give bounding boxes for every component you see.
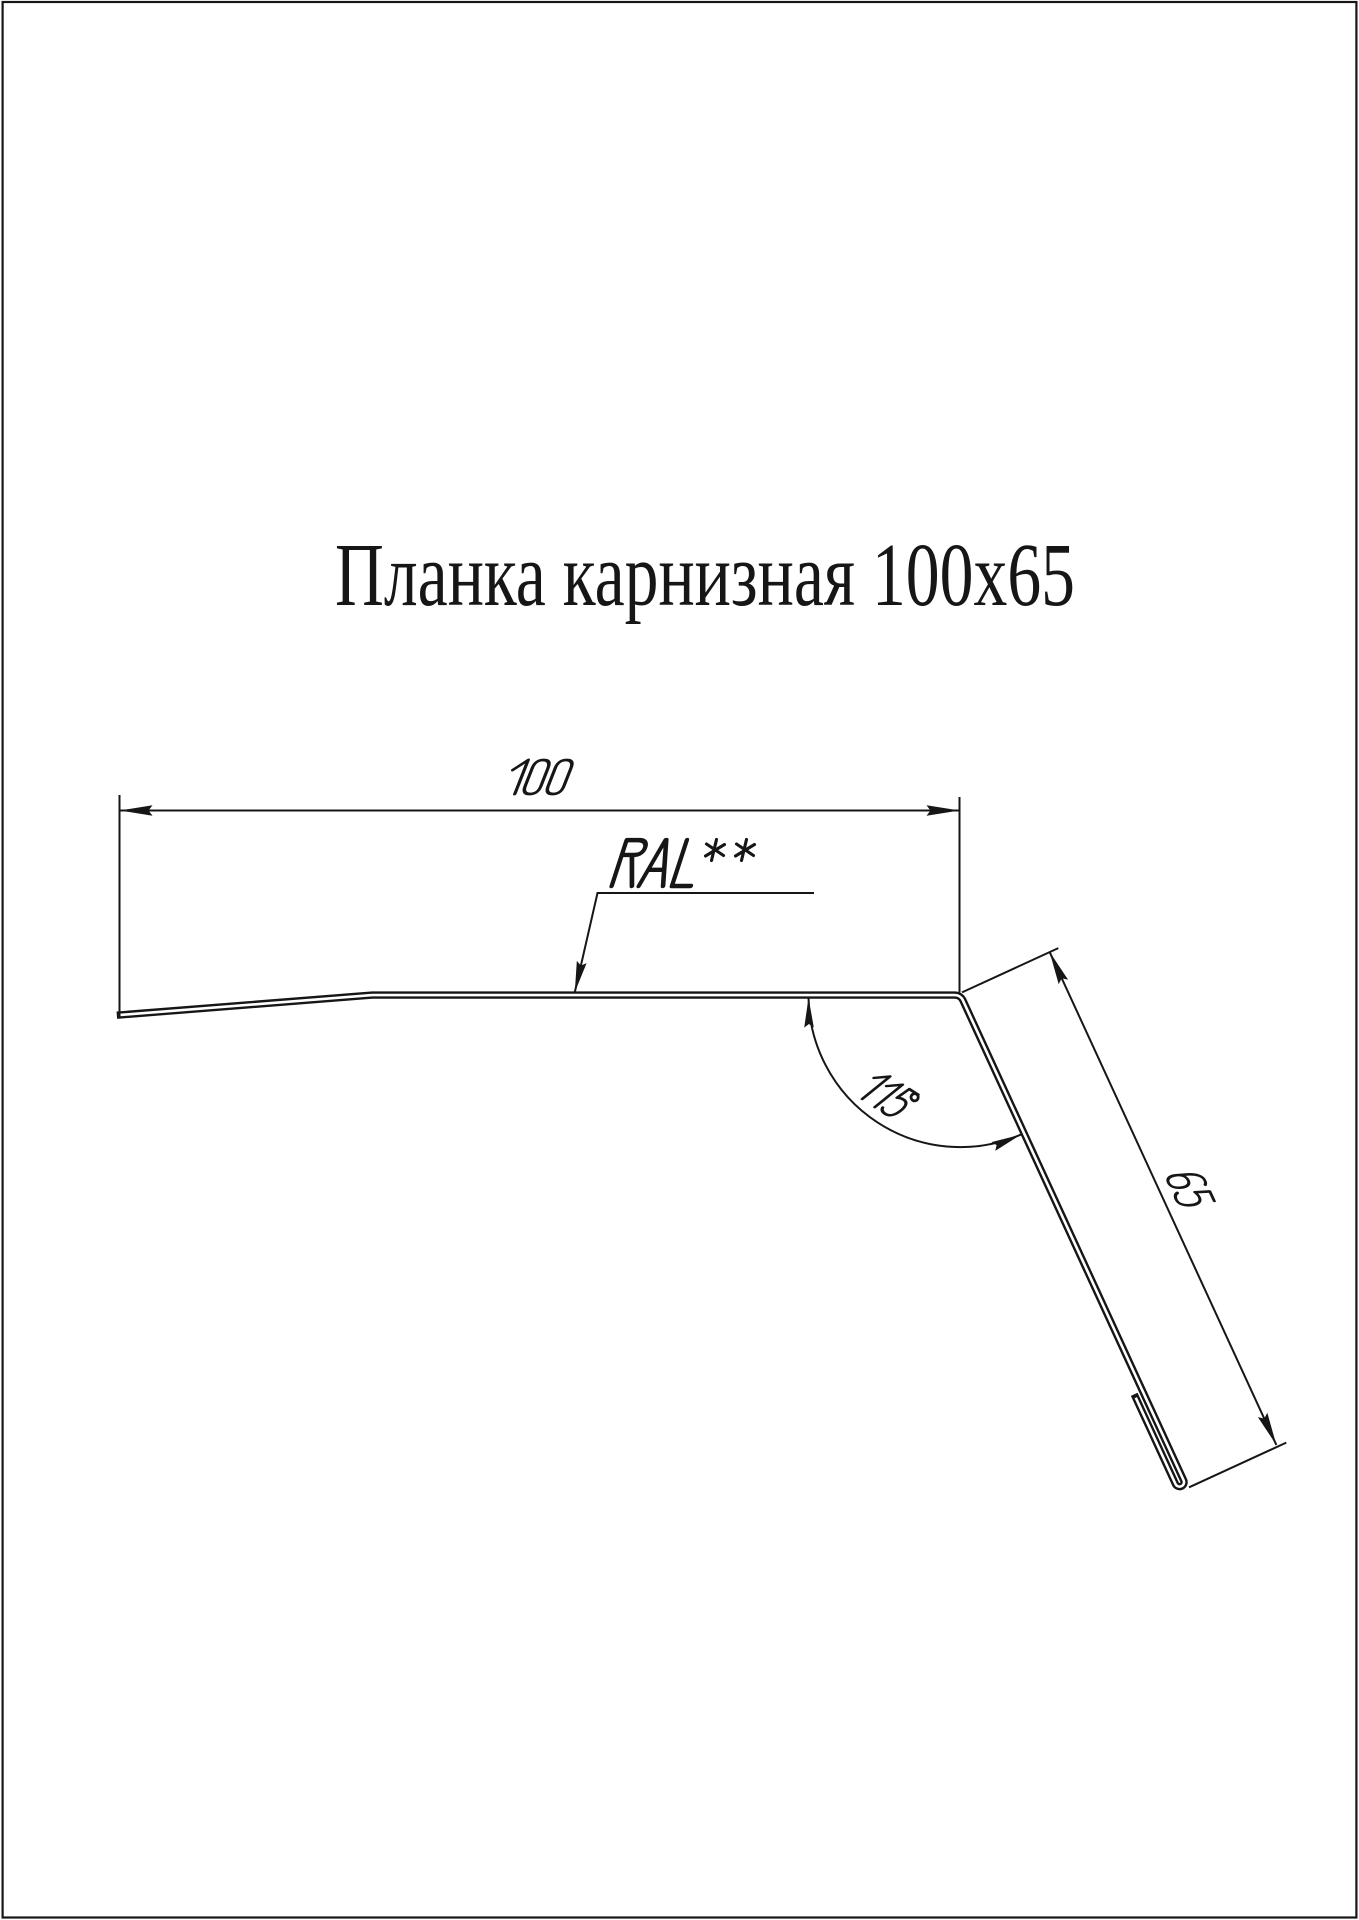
svg-text:Планка карнизная 100х65: Планка карнизная 100х65 [335, 526, 1075, 625]
